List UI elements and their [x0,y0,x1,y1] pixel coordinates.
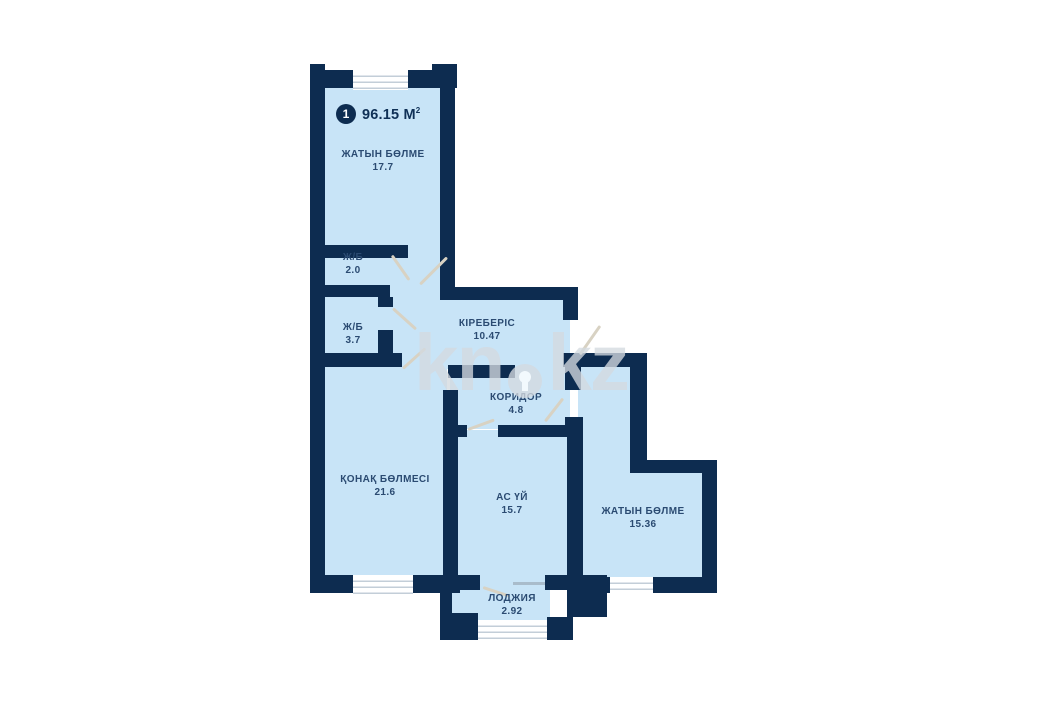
wall [440,287,578,300]
room-label-bathroom-small: Ж/Б2.0 [343,252,363,277]
window-kitchen-loggia [513,582,545,585]
room-label-bathroom: Ж/Б3.7 [343,322,363,347]
wall [443,390,458,593]
wall [310,285,390,297]
wall [310,353,402,367]
floor-plan-canvas: 1 96.15 М2 ЖАТЫН БӨЛМЕ17.7 Ж/Б2.0 Ж/Б3.7… [0,0,1063,709]
total-area-sup: 2 [416,106,421,115]
wall [565,417,583,437]
room-label-loggia: ЛОДЖИЯ2.92 [488,593,536,618]
total-area-value: 96.15 М [362,106,416,122]
wall [413,575,460,593]
room-label-bedroom-right: ЖАТЫН БӨЛМЕ15.36 [601,506,684,531]
wall [702,460,717,593]
wall [630,353,647,473]
window [353,70,408,90]
window [353,575,413,595]
wall [310,64,325,593]
room-label-kitchen: АС ҮЙ15.7 [496,492,528,517]
wall [310,575,353,593]
unit-title: 1 96.15 М2 [336,104,420,124]
room-label-entrance-hall: КІРЕБЕРІС10.47 [459,318,515,343]
unit-number-badge: 1 [336,104,356,124]
room-fill-bedroom-neck [578,365,633,475]
wall [563,287,578,320]
wall [498,425,567,437]
room-fill-living-room [322,360,447,580]
wall [545,575,583,590]
total-area-label: 96.15 М2 [362,106,420,123]
wall [448,365,515,378]
window-loggia-glazing [478,620,547,640]
wall [565,367,581,390]
room-label-corridor: КОРИДОР4.8 [490,392,542,417]
window [610,577,653,595]
wall [653,577,717,593]
wall [378,297,393,307]
wall [547,617,573,640]
room-label-living-room: ҚОНАҚ БӨЛМЕСІ21.6 [340,474,429,499]
door-swing-entrance [579,325,602,355]
wall [440,613,478,640]
wall [567,437,583,593]
room-label-bedroom-top: ЖАТЫН БӨЛМЕ17.7 [341,149,424,174]
wall [440,64,455,300]
